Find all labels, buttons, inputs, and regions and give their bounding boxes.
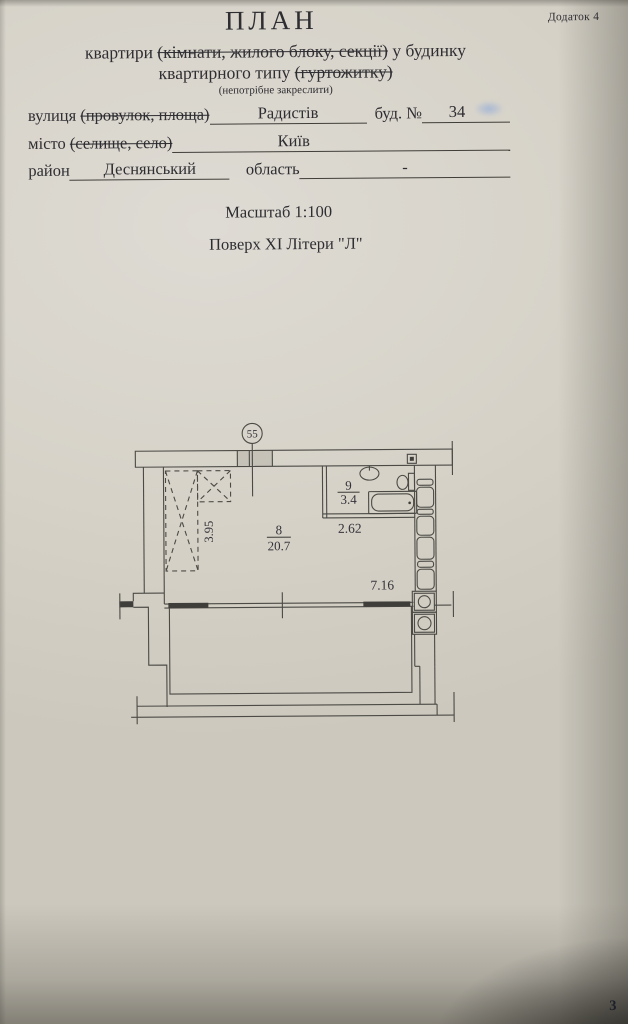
node-number-label: 55 [247, 428, 259, 440]
room8-area-label: 20.7 [268, 538, 291, 553]
dim-bathroom-width: 2.62 [338, 521, 362, 536]
room9-area-label: 3.4 [340, 492, 357, 507]
top-wall [135, 441, 452, 477]
dim-room-width: 7.16 [370, 577, 394, 592]
bathtub [369, 491, 417, 513]
dim-wardrobe-depth: 3.95 [202, 521, 216, 543]
window-wall [164, 591, 453, 619]
page-number: 3 [609, 998, 616, 1015]
page-content: Додаток 4 ПЛАН квартири (кімнати, жилого… [0, 0, 628, 1026]
plan-labels: 55 8 20.7 9 3.4 2.62 7.16 3.95 [201, 427, 394, 593]
ventilation-shafts [412, 591, 437, 704]
toilet [397, 473, 415, 490]
sink [360, 466, 379, 481]
left-wall [118, 467, 167, 707]
floor-plan-drawing: 55 8 20.7 9 3.4 2.62 7.16 3.95 [0, 0, 628, 1026]
document-page: Додаток 4 ПЛАН квартири (кімнати, жилого… [0, 0, 628, 1024]
room9-number-label: 9 [345, 478, 352, 493]
vent-block-wall [407, 454, 436, 591]
room8-number-label: 8 [276, 522, 283, 537]
balcony-outline [130, 606, 454, 724]
wardrobe-dashed-outline [165, 471, 231, 571]
